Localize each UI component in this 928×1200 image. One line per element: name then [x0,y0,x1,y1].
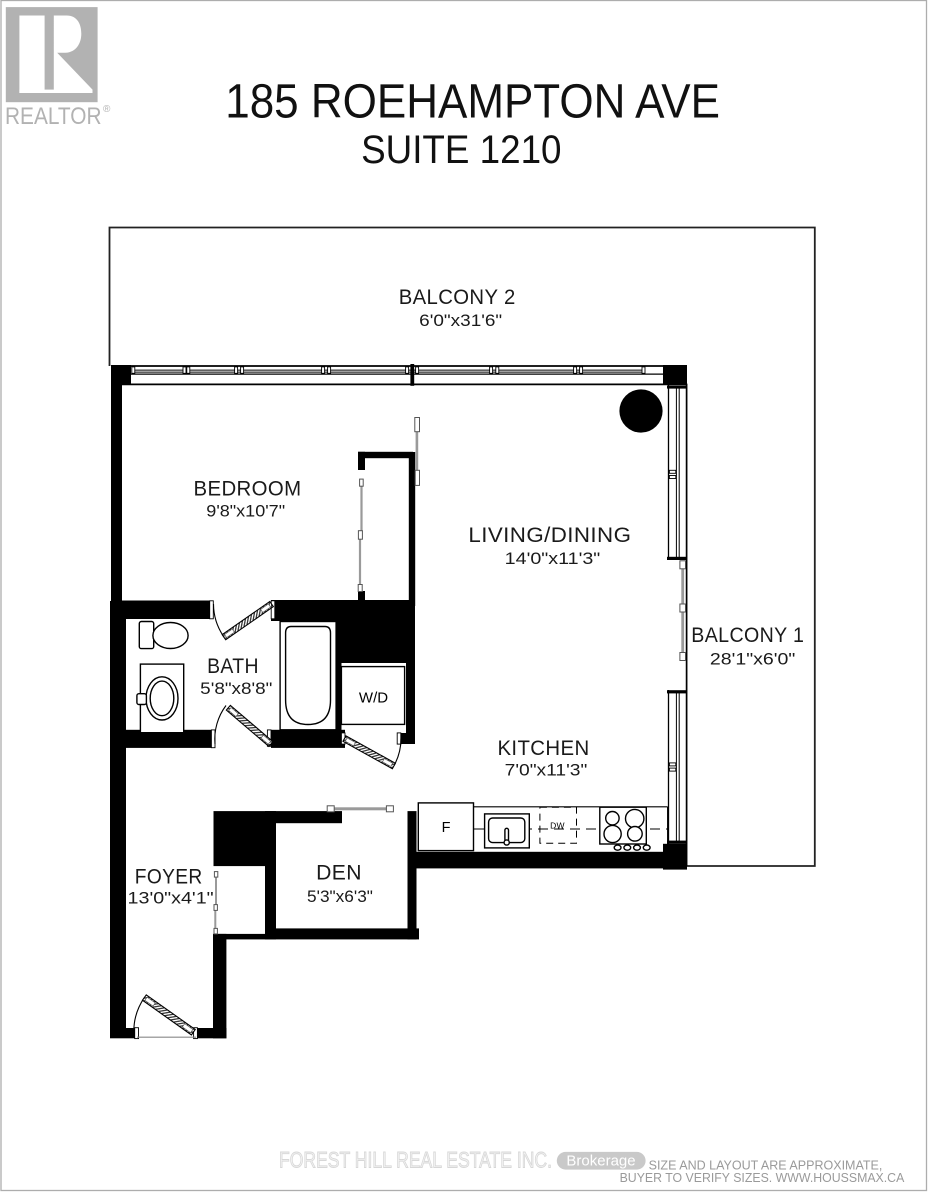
svg-text:28'1"x6'0": 28'1"x6'0" [710,650,796,669]
svg-text:BALCONY 2: BALCONY 2 [399,285,516,309]
svg-text:9'8"x10'7": 9'8"x10'7" [206,502,285,521]
svg-text:7'0"x11'3": 7'0"x11'3" [505,761,588,780]
svg-text:13'0"x4'1": 13'0"x4'1" [128,888,214,907]
svg-text:FOYER: FOYER [135,865,203,889]
svg-text:W/D: W/D [359,690,388,707]
svg-text:DEN: DEN [316,861,362,885]
svg-text:185 ROEHAMPTON AVE: 185 ROEHAMPTON AVE [225,75,720,129]
svg-text:LIVING/DINING: LIVING/DINING [468,523,631,547]
svg-text:SUITE 1210: SUITE 1210 [361,128,561,172]
svg-text:BEDROOM: BEDROOM [194,477,302,501]
svg-text:BATH: BATH [207,654,259,678]
svg-text:6'0"x31'6": 6'0"x31'6" [419,311,502,330]
svg-text:5'8"x8'8": 5'8"x8'8" [200,679,272,698]
svg-text:14'0"x11'3": 14'0"x11'3" [505,549,601,568]
svg-text:KITCHEN: KITCHEN [497,736,589,760]
svg-text:F: F [442,820,451,836]
svg-text:Brokerage: Brokerage [566,1153,635,1170]
svg-text:®: ® [103,104,111,115]
svg-text:5'3"x6'3": 5'3"x6'3" [307,887,373,906]
svg-text:FOREST HILL REAL ESTATE INC.: FOREST HILL REAL ESTATE INC. [279,1148,552,1173]
svg-text:DW: DW [550,821,565,831]
svg-text:BUYER TO VERIFY SIZES. WWW.HOU: BUYER TO VERIFY SIZES. WWW.HOUSSMAX.CA [620,1171,905,1185]
svg-text:REALTOR: REALTOR [5,103,102,130]
svg-text:BALCONY 1: BALCONY 1 [691,623,804,647]
